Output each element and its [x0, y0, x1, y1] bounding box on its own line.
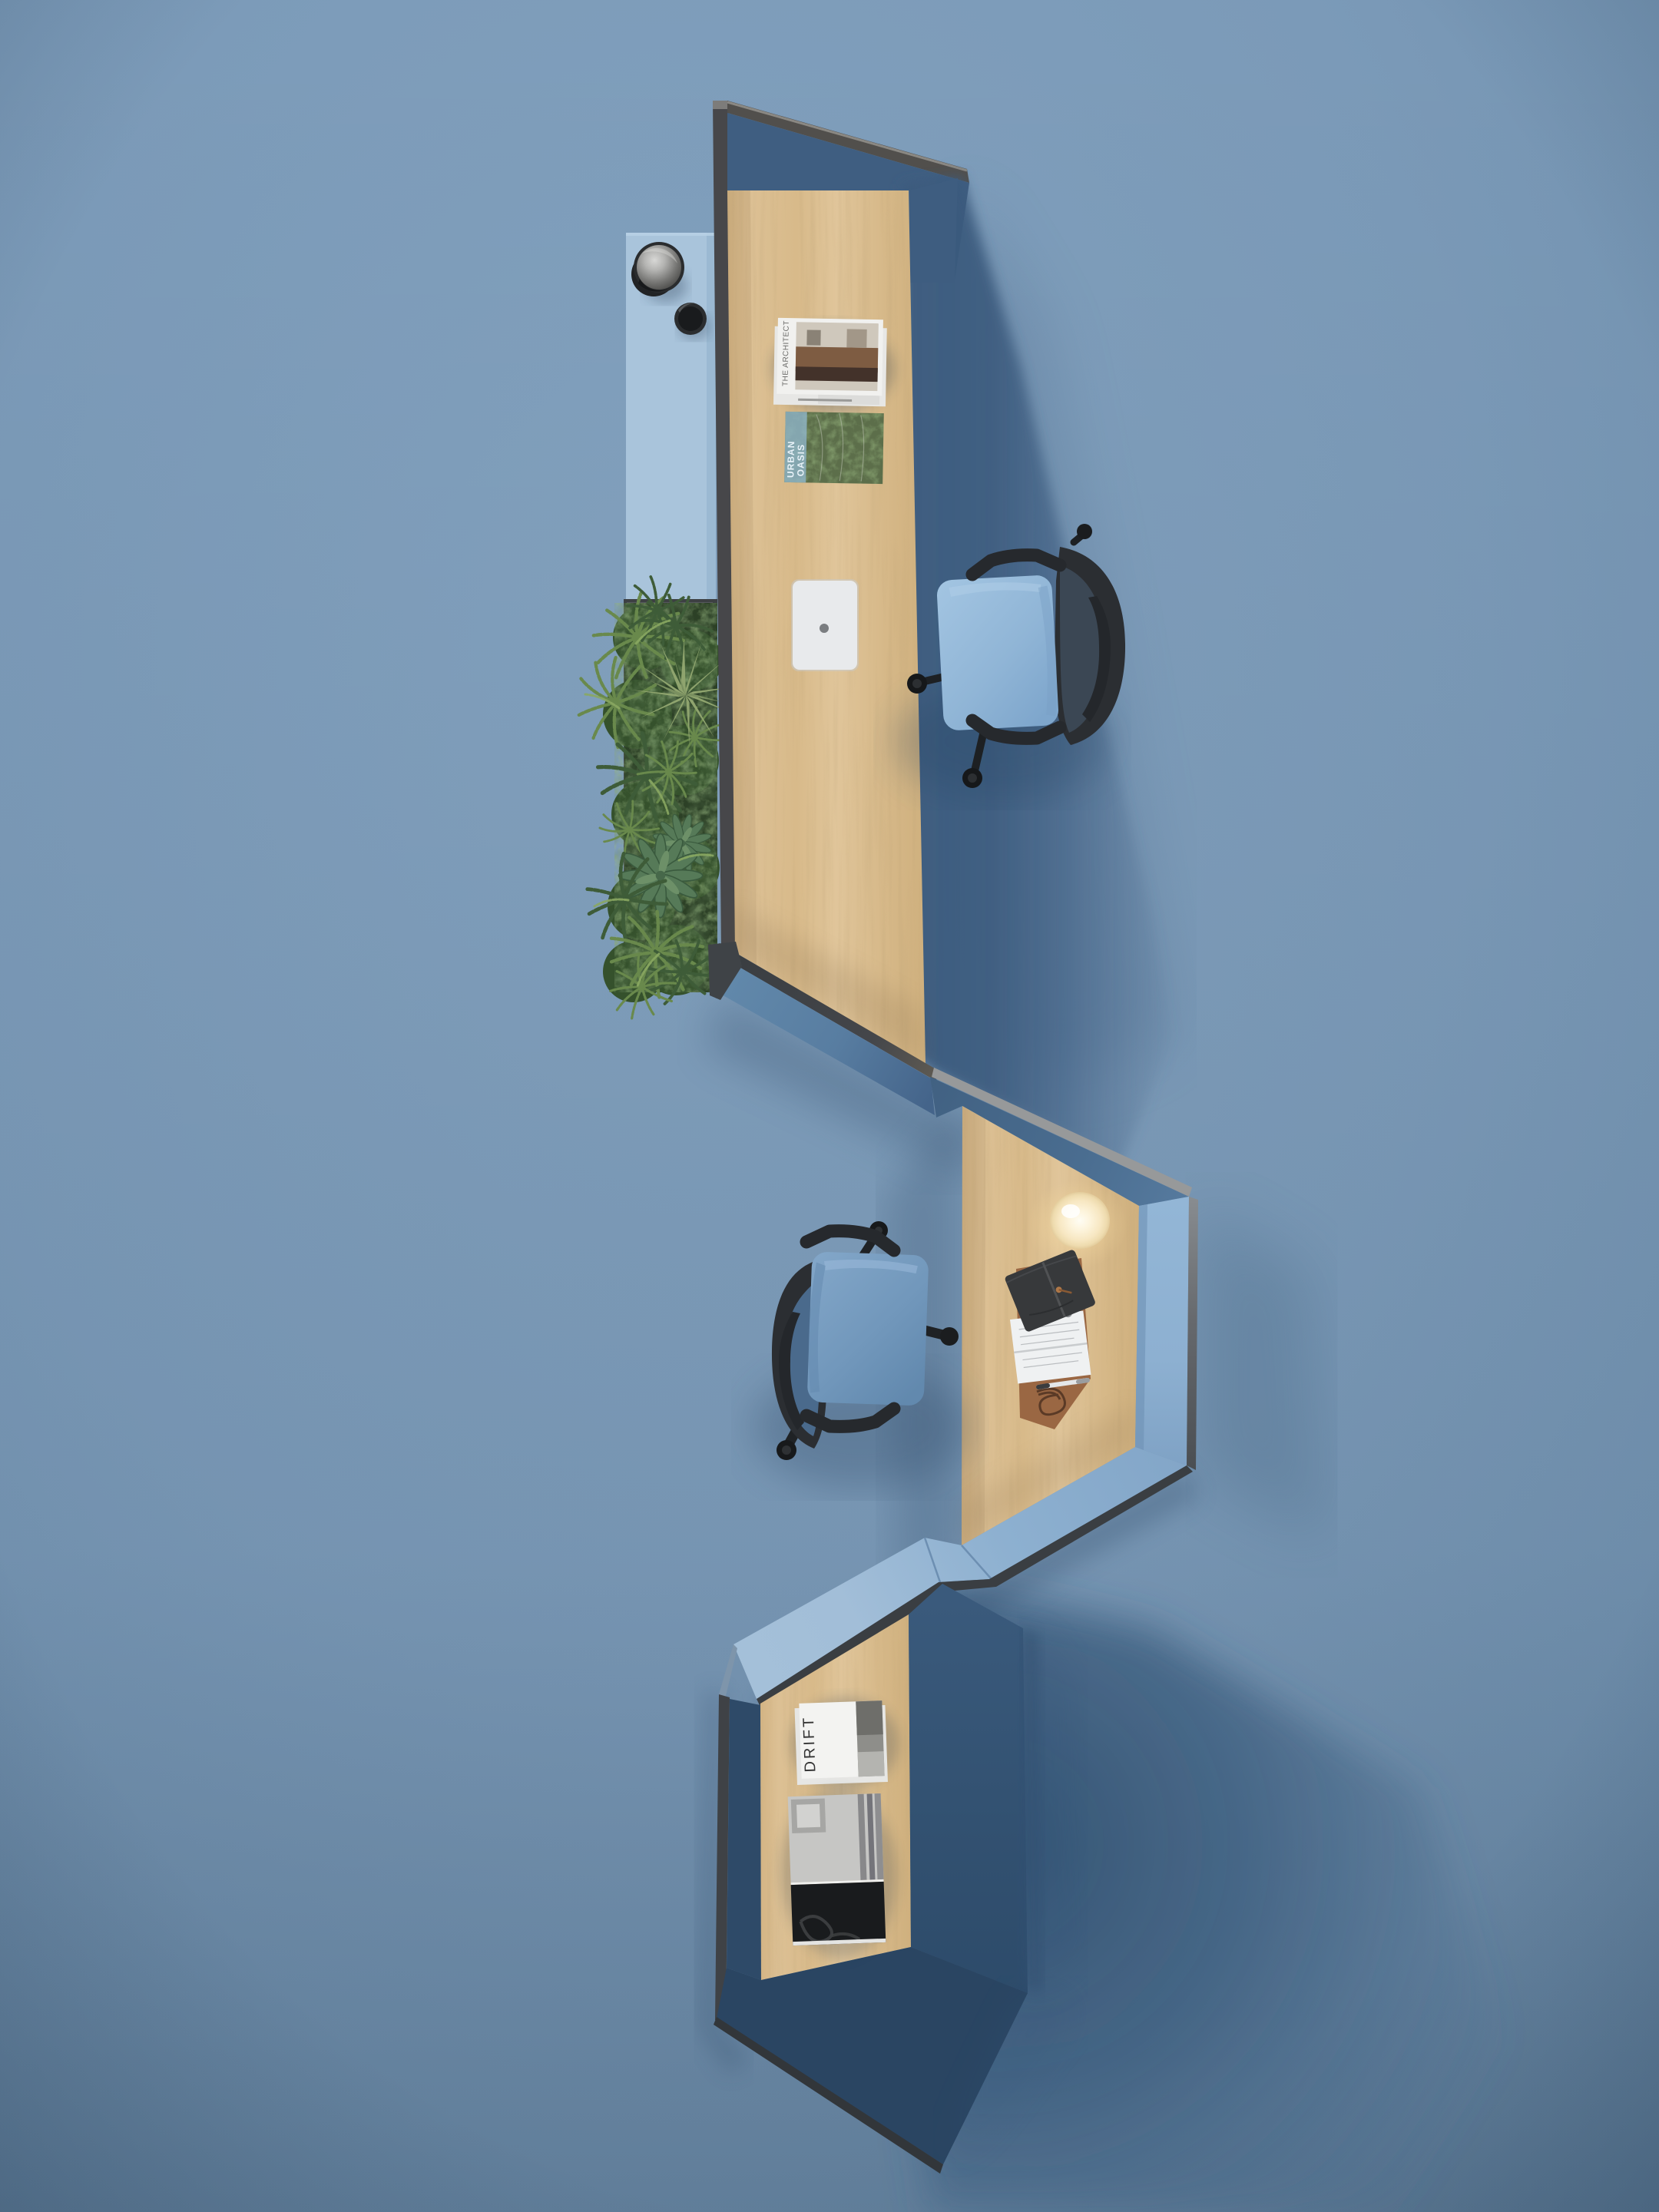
svg-text:OASIS: OASIS	[795, 444, 806, 477]
svg-text:DRIFT: DRIFT	[800, 1715, 820, 1773]
svg-text:THE ARCHITECT: THE ARCHITECT	[781, 320, 790, 386]
